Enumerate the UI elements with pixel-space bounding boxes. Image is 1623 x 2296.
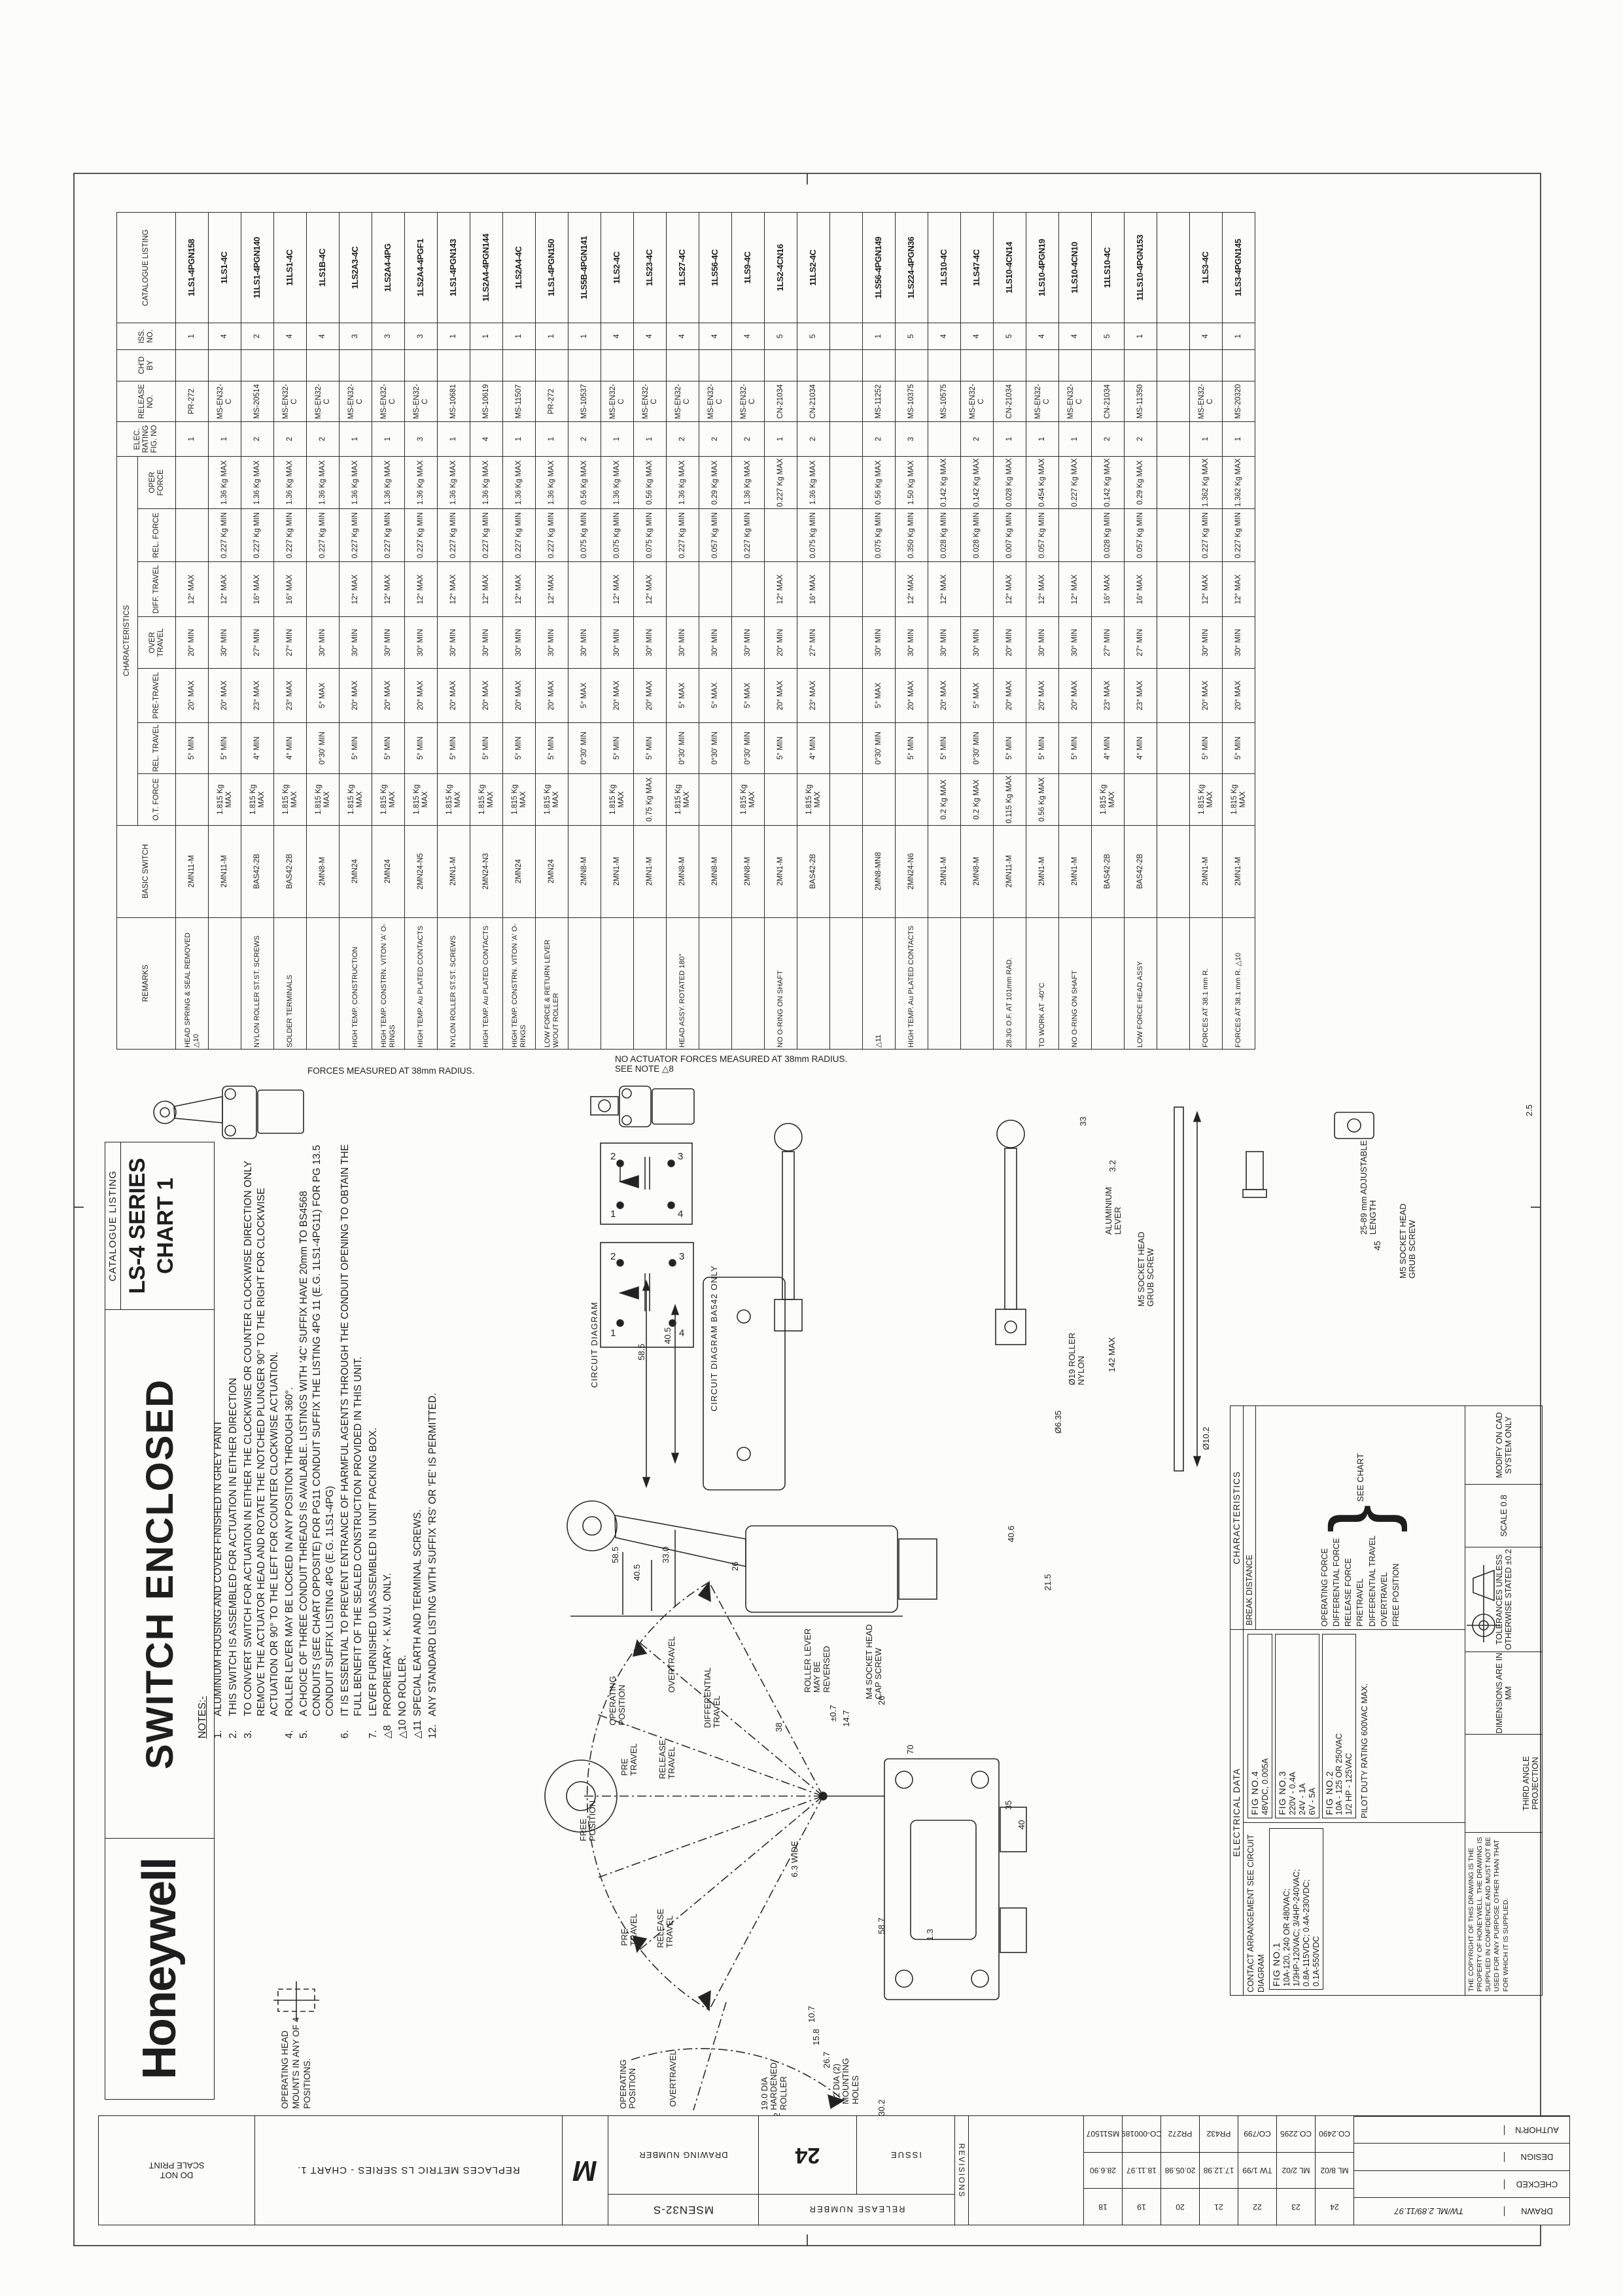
cell-diff-travel [830, 561, 863, 617]
cell-chd-by [405, 349, 438, 381]
cell-rel-travel: 5° MIN [438, 722, 470, 774]
see-note-8: SEE NOTE △8 [615, 1064, 857, 1074]
revision-no: 20 [1161, 2188, 1199, 2225]
cell-catalogue-listing: 1LS1B-4C [307, 213, 340, 323]
cell-over-travel: 30° MIN [372, 617, 405, 669]
cell-oper-force [1157, 456, 1190, 509]
cell-pre-travel: 20° MAX [438, 668, 470, 722]
cell-elec-fig: 1 [1026, 422, 1059, 456]
cell-remarks: HEAD SPRING & SEAL REMOVED △10 [176, 917, 209, 1049]
cell-elec-fig: 1 [209, 422, 241, 456]
cell-diff-travel [863, 561, 896, 617]
cell-catalogue-listing: 1LS1-4PGN143 [438, 213, 470, 323]
cell-rel-travel: 5° MIN [209, 722, 241, 774]
cell-pre-travel: 23° MAX [797, 668, 830, 722]
cell-iss-no: 5 [797, 323, 830, 349]
cell-elec-fig: 2 [863, 422, 896, 456]
cell-elec-fig: 2 [699, 422, 732, 456]
cell-rel-force: 0.227 Kg MIN [1190, 509, 1223, 562]
cell-over-travel: 30° MIN [503, 617, 536, 669]
revision-ref: MS11507 [1084, 2116, 1122, 2152]
cell-iss-no [1157, 323, 1190, 349]
cell-basic-switch [830, 825, 863, 917]
catalogue-row: LOW FORCE HEAD ASSY BAS42-2B 4° MIN 23° … [1125, 213, 1157, 1050]
cell-pre-travel: 20° MAX [176, 668, 209, 722]
dim-label: 3.2 [1108, 1160, 1117, 1172]
characteristic-item: DIFFERENTIAL FORCE [1331, 1536, 1342, 1627]
cell-rel-travel: 0°30' MIN [732, 722, 765, 774]
cell-catalogue-listing: 11LS10-4PGN153 [1125, 213, 1157, 323]
cell-oper-force: 1.36 Kg MAX [274, 456, 307, 509]
fig2-rating-line: 1/2 HP - 125VAC [1344, 1637, 1354, 1815]
cell-iss-no: 1 [1125, 323, 1157, 349]
margin-strip: DRAWN TW/ML 2.89/11.97 CHECKED DESIGN [98, 2115, 1570, 2225]
cell-chd-by [1223, 349, 1255, 381]
cell-release-no: MS-10375 [896, 381, 928, 421]
dim-label: 142 MAX [1107, 1337, 1117, 1372]
cell-rel-travel: 5° MIN [601, 722, 634, 774]
cell-elec-fig: 1 [1190, 422, 1223, 456]
catalogue-row [1157, 213, 1190, 1050]
cell-pre-travel: 20° MAX [209, 668, 241, 722]
note-number: 2. [227, 1716, 240, 1739]
cell-ot-force: 1.815 Kg MAX [405, 774, 438, 826]
brand-box: Honeywell [105, 1838, 215, 2100]
note-number: 4. [283, 1716, 296, 1739]
cell-catalogue-listing: 1LS3-4C [1190, 213, 1223, 323]
cell-iss-no: 1 [568, 323, 601, 349]
cell-iss-no: 4 [1059, 323, 1092, 349]
characteristic-item: OPERATING FORCE [1319, 1536, 1331, 1627]
cell-rel-force: 0.227 Kg MIN [667, 509, 699, 562]
drawing-number-label: DRAWING NUMBER [608, 2116, 758, 2194]
cell-basic-switch: BAS42-2B [1092, 825, 1125, 917]
note-item: 12. ANY STANDARD LISTING WITH SUFFIX 'RS… [427, 1137, 440, 1739]
cell-rel-travel [1157, 722, 1190, 774]
catalogue-row: 28.3G O.F. AT 101mm RAD. 2MN11-M 0.115 K… [994, 213, 1026, 1050]
scale-box: SCALE 0.8 [1465, 1484, 1543, 1547]
cell-pre-travel: 23° MAX [241, 668, 274, 722]
cell-release-no: MS-EN32-C [732, 381, 765, 421]
cell-remarks [1092, 917, 1125, 1049]
cell-rel-travel: 5° MIN [1026, 722, 1059, 774]
cell-iss-no: 4 [1026, 323, 1059, 349]
fig1-rating-line: 0.1A-550VDC [1312, 1831, 1321, 1987]
catalogue-row: HEAD SPRING & SEAL REMOVED △10 2MN11-M 5… [176, 213, 209, 1050]
catalogue-row: NYLON ROLLER ST.ST. SCREWS 2MN1-M 1.815 … [438, 213, 470, 1050]
signoff-value: TW/ML 2.89/11.97 [1354, 2206, 1504, 2216]
cell-release-no: MS-EN32-C [634, 381, 667, 421]
fig1-box: FIG NO.1 10A-120, 240 OR 480VAC;1/3HP-12… [1269, 1828, 1323, 1990]
revision-ref: PR432 [1200, 2116, 1238, 2152]
revision-entry: 22 TW 1/99 CO/799 [1238, 2116, 1276, 2225]
characteristics-list: OPERATING FORCEDIFFERENTIAL FORCERELEASE… [1319, 1536, 1402, 1627]
dim-label: 40.5 [663, 1328, 672, 1344]
col-header-relf: REL. FORCE [138, 509, 176, 562]
dim-label: 40.6 [1006, 1526, 1016, 1542]
roller-reversed-label: ROLLER LEVER MAY BE REVERSED [803, 1614, 831, 1693]
cell-remarks: NYLON ROLLER ST.ST. SCREWS [438, 917, 470, 1049]
cell-catalogue-listing: 1LS2-4CN16 [765, 213, 797, 323]
cell-oper-force: 1.36 Kg MAX [241, 456, 274, 509]
cell-pre-travel: 5° MAX [667, 668, 699, 722]
cell-rel-travel: 5° MIN [634, 722, 667, 774]
note-number: 3. [242, 1716, 281, 1739]
cell-rel-travel: 5° MIN [1223, 722, 1255, 774]
dim-label: 40 [1017, 1820, 1026, 1829]
cell-rel-travel: 5° MIN [405, 722, 438, 774]
electrical-data-box: ELECTRICAL DATA CONTACT ARRANGEMENT SEE … [1230, 1629, 1465, 1996]
cell-ot-force: 1.815 Kg MAX [340, 774, 372, 826]
cell-pre-travel: 20° MAX [470, 668, 503, 722]
cell-elec-fig: 2 [1125, 422, 1157, 456]
characteristic-item: PRETRAVEL [1354, 1536, 1366, 1627]
fig1-rating-line: 0.8A-115VDC; 0.4A-230VDC; [1302, 1831, 1312, 1987]
circuit-diagram-label: CIRCUIT DIAGRAM [590, 1301, 599, 1388]
note-item: 6. IT IS ESSENTIAL TO PREVENT ENTRANCE O… [339, 1137, 365, 1739]
catalogue-row [830, 213, 863, 1050]
third-angle-label: THIRD ANGLE PROJECTION [1522, 1737, 1540, 1830]
cell-diff-travel: 12° MAX [470, 561, 503, 617]
cell-iss-no: 1 [438, 323, 470, 349]
revision-date: 17.12.98 [1200, 2152, 1238, 2189]
cell-iss-no: 1 [536, 323, 568, 349]
cell-over-travel: 30° MIN [438, 617, 470, 669]
cell-iss-no: 4 [699, 323, 732, 349]
cell-elec-fig [830, 422, 863, 456]
release-number-label: RELEASE NUMBER [759, 2194, 954, 2225]
cell-diff-travel: 12° MAX [340, 561, 372, 617]
notes-block: NOTES:- 1. ALUMINIUM HOUSING AND COVER F… [196, 1137, 572, 1739]
cell-over-travel: 20° MIN [994, 617, 1026, 669]
cell-oper-force [830, 456, 863, 509]
no-actuator-note: NO ACTUATOR FORCES MEASURED AT 38mm RADI… [615, 1054, 857, 1074]
cell-chd-by [503, 349, 536, 381]
cell-over-travel: 27° MIN [274, 617, 307, 669]
cell-catalogue-listing: 1LS56-4C [699, 213, 732, 323]
cell-release-no: MS-EN32-C [667, 381, 699, 421]
cell-elec-fig: 1 [634, 422, 667, 456]
cell-diff-travel: 12° MAX [928, 561, 961, 617]
cell-chd-by [765, 349, 797, 381]
cell-remarks [961, 917, 994, 1049]
col-header-release: RELEASE NO. [117, 381, 176, 421]
cell-basic-switch: 2MN11-M [994, 825, 1026, 917]
cell-rel-force: 0.227 Kg MIN [241, 509, 274, 562]
cell-elec-fig: 2 [667, 422, 699, 456]
cell-catalogue-listing: 1LS1-4PGN158 [176, 213, 209, 323]
cell-chd-by [340, 349, 372, 381]
fig4-title: FIG NO.4 [1249, 1637, 1261, 1815]
cell-elec-fig: 3 [896, 422, 928, 456]
cell-chd-by [797, 349, 830, 381]
cell-basic-switch: 2MN24 [503, 825, 536, 917]
drawing-number-block: MSEN32-S DRAWING NUMBER [608, 2116, 758, 2225]
cell-rel-force: 0.227 Kg MIN [503, 509, 536, 562]
cell-ot-force: 0.75 Kg MAX [634, 774, 667, 826]
cell-release-no: MS-EN32-C [307, 381, 340, 421]
note-text: TO CONVERT SWITCH FOR ACTUATION IN EITHE… [242, 1137, 281, 1716]
cell-remarks [568, 917, 601, 1049]
cell-elec-fig: 1 [372, 422, 405, 456]
cell-elec-fig: 1 [340, 422, 372, 456]
cell-chd-by [209, 349, 241, 381]
cell-oper-force: 1.36 Kg MAX [372, 456, 405, 509]
cell-ot-force: 1.815 Kg MAX [503, 774, 536, 826]
cell-elec-fig: 2 [797, 422, 830, 456]
cell-rel-force: 0.075 Kg MIN [863, 509, 896, 562]
catalogue-row: 2MN8-M 1.815 Kg MAX 0°30' MIN 5° MAX 30°… [307, 213, 340, 1050]
revision-ref: CO.2490 [1316, 2116, 1353, 2152]
note-item: △11 SPECIAL EARTH AND TERMINAL SCREWS. [411, 1137, 425, 1739]
cell-diff-travel: 12° MAX [209, 561, 241, 617]
dim-label: 58.7 [877, 1918, 886, 1934]
cell-elec-fig: 2 [568, 422, 601, 456]
cell-chd-by [928, 349, 961, 381]
dim-label: Ø6.35 [1053, 1411, 1063, 1434]
revision-date: 18.11.97 [1123, 2152, 1161, 2189]
note-item: 2. THIS SWITCH IS ASSEMBLED FOR ACTUATIO… [227, 1137, 240, 1739]
note-number: △8 [381, 1716, 394, 1739]
cell-rel-force: 0.057 Kg MIN [1125, 509, 1157, 562]
col-header-over: OVER TRAVEL [138, 617, 176, 669]
cell-catalogue-listing: 1LS47-4C [961, 213, 994, 323]
cell-ot-force [1125, 774, 1157, 826]
cell-over-travel: 30° MIN [1223, 617, 1255, 669]
cell-ot-force [699, 774, 732, 826]
cell-remarks: 28.3G O.F. AT 101mm RAD. [994, 917, 1026, 1049]
cell-rel-travel: 5° MIN [503, 722, 536, 774]
cell-release-no: MS-10537 [568, 381, 601, 421]
cell-oper-force: 1.36 Kg MAX [307, 456, 340, 509]
cell-oper-force: 0.028 Kg MAX [994, 456, 1026, 509]
cell-oper-force: 1.36 Kg MAX [797, 456, 830, 509]
col-header-elec: ELEC. RATING FIG. NO [117, 422, 176, 456]
cell-elec-fig: 1 [1223, 422, 1255, 456]
cell-oper-force: 1.36 Kg MAX [601, 456, 634, 509]
revision-no: 23 [1277, 2188, 1315, 2225]
cell-ot-force: 1.815 Kg MAX [667, 774, 699, 826]
cell-over-travel: 30° MIN [340, 617, 372, 669]
cell-over-travel: 30° MIN [1059, 617, 1092, 669]
note-text: A CHOICE OF THREE CONDUIT THREADS IS AVA… [298, 1137, 336, 1716]
catalogue-row: NO O-RING ON SHAFT 2MN1-M 5° MIN 20° MAX… [765, 213, 797, 1050]
cell-oper-force: 0.56 Kg MAX [568, 456, 601, 509]
cell-oper-force: 0.29 Kg MAX [1125, 456, 1157, 509]
cell-elec-fig: 2 [241, 422, 274, 456]
cell-iss-no: 5 [994, 323, 1026, 349]
cell-iss-no: 5 [1092, 323, 1125, 349]
cell-ot-force: 1.815 Kg MAX [1190, 774, 1223, 826]
hardened-roller-label: 19.0 DIA HARDENED ROLLER [760, 2035, 788, 2110]
revision-entry: 23 ML 2/02 CO.2295 [1276, 2116, 1315, 2225]
cell-rel-force: 0.007 Kg MIN [994, 509, 1026, 562]
cell-remarks: HEAD ASSY. ROTATED 180° [667, 917, 699, 1049]
cell-diff-travel: 12° MAX [405, 561, 438, 617]
cell-rel-force: 0.227 Kg MIN [372, 509, 405, 562]
catalogue-row: BAS42-2B 1.815 Kg MAX 4° MIN 23° MAX 27°… [1092, 213, 1125, 1050]
col-header-basic: BASIC SWITCH [117, 825, 176, 917]
cell-over-travel: 30° MIN [1026, 617, 1059, 669]
fig3-title: FIG NO.3 [1277, 1637, 1288, 1815]
cell-over-travel: 30° MIN [634, 617, 667, 669]
cell-basic-switch: 2MN1-M [634, 825, 667, 917]
cell-oper-force: 0.56 Kg MAX [863, 456, 896, 509]
cell-oper-force: 0.142 Kg MAX [961, 456, 994, 509]
cell-ot-force: 1.815 Kg MAX [470, 774, 503, 826]
cell-catalogue-listing: 11LS2-4C [797, 213, 830, 323]
characteristic-item: FREE POSITION [1390, 1536, 1402, 1627]
cell-iss-no: 4 [601, 323, 634, 349]
cell-remarks: HIGH TEMP. CONSTRN. VITON 'A' O-RINGS [372, 917, 405, 1049]
characteristics-title: CHARACTERISTICS [1230, 1406, 1244, 1629]
cell-pre-travel: 20° MAX [1026, 668, 1059, 722]
cell-iss-no: 4 [274, 323, 307, 349]
col-header-otf: O.T. FORCE [138, 774, 176, 826]
revisions-label: REVISIONS [957, 2143, 966, 2197]
cell-basic-switch: 2MN24-N3 [470, 825, 503, 917]
cell-release-no [1157, 381, 1190, 421]
cell-release-no: MS-11507 [503, 381, 536, 421]
cell-diff-travel: 12° MAX [536, 561, 568, 617]
operating-position-label: OPERATING POSITION [608, 1663, 627, 1725]
cell-rel-travel: 5° MIN [176, 722, 209, 774]
catalogue-row: FORCES AT 38.1 mm R. 2MN1-M 1.815 Kg MAX… [1190, 213, 1223, 1050]
cell-remarks [928, 917, 961, 1049]
cell-pre-travel: 20° MAX [1223, 668, 1255, 722]
cell-diff-travel [1157, 561, 1190, 617]
cell-rel-force: 0.227 Kg MIN [274, 509, 307, 562]
cell-release-no: MS-EN32-C [1026, 381, 1059, 421]
revision-no: 24 [1316, 2188, 1353, 2225]
cell-elec-fig: 1 [1059, 422, 1092, 456]
revision-date: ML 2/02 [1277, 2152, 1315, 2189]
cell-diff-travel: 12° MAX [1223, 561, 1255, 617]
cell-release-no: MS-20514 [241, 381, 274, 421]
cell-chd-by [536, 349, 568, 381]
cell-over-travel: 30° MIN [928, 617, 961, 669]
cell-release-no: MS-EN32-C [1190, 381, 1223, 421]
cell-diff-travel [732, 561, 765, 617]
cell-basic-switch: 2MN1-M [1026, 825, 1059, 917]
cell-release-no: PR-272 [536, 381, 568, 421]
cell-oper-force: 1.36 Kg MAX [340, 456, 372, 509]
cell-pre-travel: 5° MAX [307, 668, 340, 722]
no-actuator-text: NO ACTUATOR FORCES MEASURED AT 38mm RADI… [615, 1054, 857, 1064]
cell-catalogue-listing: 1LS3-4PGN145 [1223, 213, 1255, 323]
dim-label: 26 [730, 1562, 740, 1571]
cell-remarks: FORCES AT 38.1 mm R. [1190, 917, 1223, 1049]
cell-over-travel: 30° MIN [667, 617, 699, 669]
cell-rel-force: 0.227 Kg MIN [470, 509, 503, 562]
dim-label: 26.7 [822, 2052, 831, 2068]
cell-ot-force: 1.815 Kg MAX [209, 774, 241, 826]
cell-basic-switch: BAS42-2B [274, 825, 307, 917]
note-number: 7. [367, 1716, 380, 1739]
forces-measured-note: FORCES MEASURED AT 38mm RADIUS. [307, 1066, 474, 1076]
cell-pre-travel: 20° MAX [1190, 668, 1223, 722]
catalogue-table: REMARKS BASIC SWITCH CHARACTERISTICS ELE… [116, 212, 1255, 1050]
cell-chd-by [994, 349, 1026, 381]
note-item: 7. LEVER FURNISHED UNASSEMBLED IN UNIT P… [367, 1137, 380, 1739]
cell-chd-by [568, 349, 601, 381]
cell-chd-by [176, 349, 209, 381]
cell-diff-travel [961, 561, 994, 617]
catalogue-row: HIGH TEMP. Au PLATED CONTACTS 2MN24-N6 5… [896, 213, 928, 1050]
cell-basic-switch: BAS42-2B [797, 825, 830, 917]
catalogue-row: SOLDER TERMINALS BAS42-2B 1.815 Kg MAX 4… [274, 213, 307, 1050]
signoff-label: CHECKED [1504, 2180, 1569, 2189]
dim-label: 38 [774, 1723, 784, 1732]
dim-label: ±0.7 [828, 1705, 838, 1722]
cell-pre-travel: 5° MAX [732, 668, 765, 722]
cell-release-no: MS-EN32-C [699, 381, 732, 421]
cell-basic-switch: 2MN1-M [1223, 825, 1255, 917]
cell-rel-force: 0.227 Kg MIN [209, 509, 241, 562]
cell-diff-travel: 12° MAX [176, 561, 209, 617]
fig2-title: FIG NO.2 [1324, 1637, 1335, 1815]
cell-rel-travel: 5° MIN [470, 722, 503, 774]
cell-iss-no [830, 323, 863, 349]
cell-rel-travel: 0°30' MIN [863, 722, 896, 774]
issue-label: ISSUE [856, 2116, 954, 2194]
release-travel-label: RELEASE TRAVEL [656, 1902, 675, 1948]
cell-chd-by [1190, 349, 1223, 381]
cell-chd-by [601, 349, 634, 381]
cell-ot-force: 0.2 Kg MAX [961, 774, 994, 826]
catalogue-row: 2MN8-M 0°30' MIN 5° MAX 30° MIN 0.057 Kg… [699, 213, 732, 1050]
cell-chd-by [961, 349, 994, 381]
drawing-number-value: MSEN32-S [608, 2194, 758, 2225]
characteristic-item: DIFFERENTIAL TRAVEL [1367, 1536, 1378, 1627]
cell-iss-no: 1 [503, 323, 536, 349]
cell-chd-by [863, 349, 896, 381]
dim-label: 35 [1003, 1801, 1013, 1810]
differential-travel-label: DIFFERENTIAL TRAVEL [703, 1656, 722, 1728]
signoff-row: DESIGN [1354, 2144, 1569, 2171]
cell-ot-force [1157, 774, 1190, 826]
cell-elec-fig [1157, 422, 1190, 456]
note-text: PROPRIETARY - K.W.U. ONLY. [381, 1573, 394, 1716]
cell-remarks [830, 917, 863, 1049]
cell-oper-force: 0.29 Kg MAX [699, 456, 732, 509]
cell-diff-travel: 12° MAX [1190, 561, 1223, 617]
cell-diff-travel: 12° MAX [994, 561, 1026, 617]
cell-pre-travel: 20° MAX [340, 668, 372, 722]
catalogue-row: NYLON ROLLER ST.ST. SCREWS BAS42-2B 1.81… [241, 213, 274, 1050]
cell-elec-fig: 1 [994, 422, 1026, 456]
cell-release-no: CN-21034 [797, 381, 830, 421]
cell-chd-by [274, 349, 307, 381]
catalogue-listing-label: CATALOGUE LISTING [105, 1142, 121, 1309]
cell-remarks: SOLDER TERMINALS [274, 917, 307, 1049]
cell-rel-travel: 0°30' MIN [699, 722, 732, 774]
fig1-rating-line: 10A-120, 240 OR 480VAC; [1282, 1831, 1292, 1987]
cell-rel-force: 0.227 Kg MIN [1223, 509, 1255, 562]
cell-diff-travel: 12° MAX [634, 561, 667, 617]
cell-remarks [634, 917, 667, 1049]
signoff-label: DESIGN [1504, 2152, 1569, 2162]
cell-rel-travel [830, 722, 863, 774]
cell-pre-travel: 20° MAX [928, 668, 961, 722]
modify-cad-box: MODIFY ON CAD SYSTEM ONLY [1465, 1405, 1543, 1484]
cell-diff-travel: 16° MAX [241, 561, 274, 617]
note-text: NO ROLLER. [396, 1655, 410, 1716]
dim-label: 21.5 [1043, 1574, 1053, 1591]
m5-screw-label: M5 SOCKET HEAD GRUB SCREW [1137, 1218, 1156, 1307]
cell-basic-switch: 2MN8-M [732, 825, 765, 917]
cell-catalogue-listing: 1LS56-4PGN149 [863, 213, 896, 323]
